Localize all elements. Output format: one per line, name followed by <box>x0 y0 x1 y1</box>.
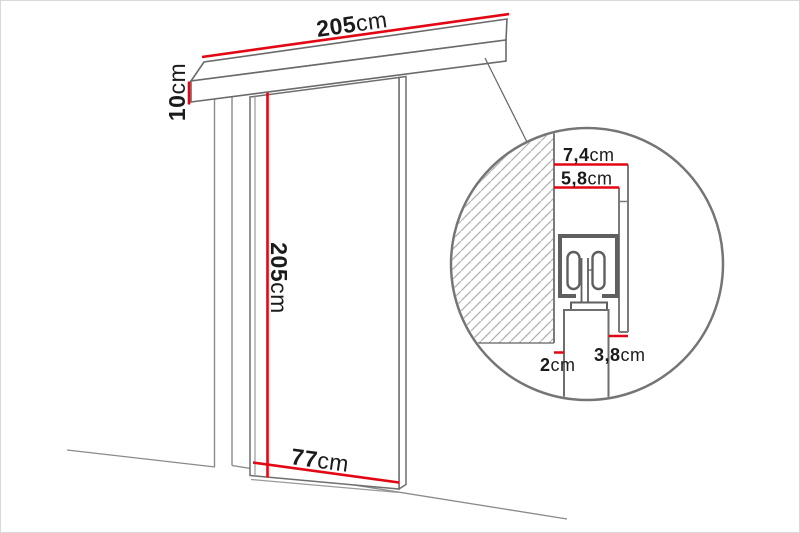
roller-carriage <box>560 236 617 310</box>
hatched-wall-section <box>451 129 554 343</box>
door-height-label: 205cm <box>266 242 292 314</box>
door-clamp-plate <box>571 303 607 311</box>
panel-offset-label: 3,8cm <box>594 345 646 365</box>
roller-right <box>593 252 605 289</box>
sliding-door-diagram: 205cm 77cm 205cm 10cm <box>1 1 800 533</box>
housing-bottom-opening <box>576 291 602 299</box>
diagram-canvas: 205cm 77cm 205cm 10cm <box>0 0 800 533</box>
detail-leader-line <box>485 58 527 142</box>
wall-bottom-edge <box>67 450 215 467</box>
detail-view-content: 7,4cm 5,8cm 3,8cm 2cm <box>451 129 646 426</box>
roller-left <box>568 252 580 289</box>
rail-height-label: 10cm <box>164 63 190 121</box>
total-depth-label: 7,4cm <box>563 145 615 165</box>
wall-edge <box>215 97 233 467</box>
track-depth-label: 5,8cm <box>561 169 613 189</box>
wall-gap-label: 2cm <box>540 355 576 375</box>
door-side-face <box>399 77 406 490</box>
